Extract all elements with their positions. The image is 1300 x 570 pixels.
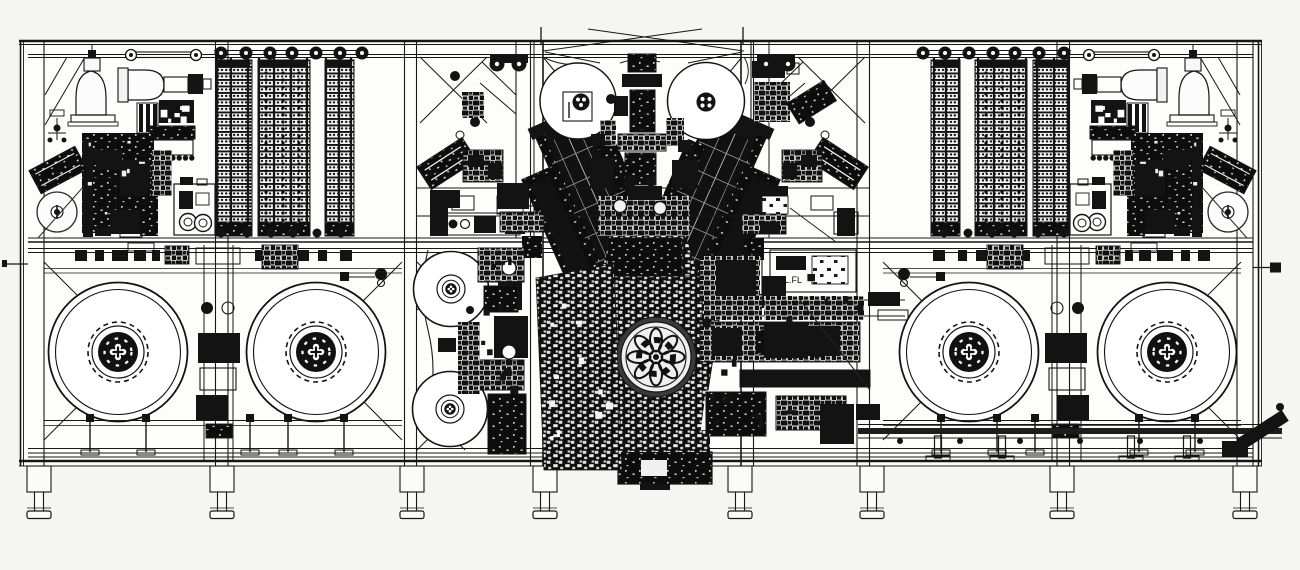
svg-text:EL.FL: EL.FL (778, 275, 802, 285)
